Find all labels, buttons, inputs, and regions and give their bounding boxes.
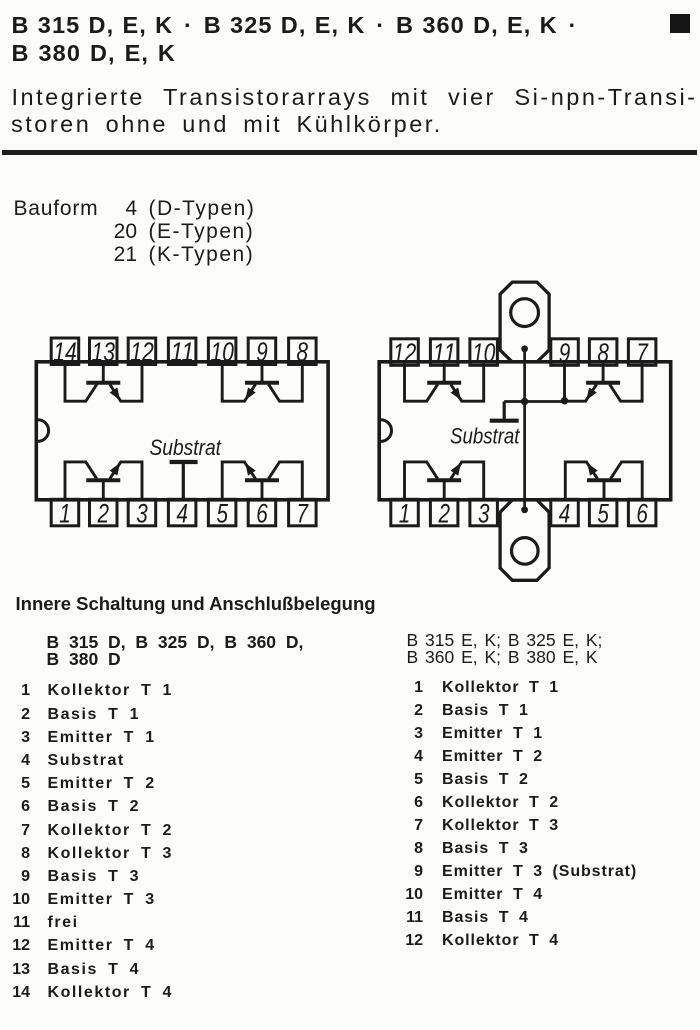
svg-text:Substrat: Substrat (150, 435, 223, 460)
svg-text:12: 12 (130, 337, 154, 367)
svg-text:Substrat: Substrat (450, 424, 520, 449)
svg-text:4: 4 (559, 499, 571, 529)
svg-text:8: 8 (297, 337, 309, 367)
svg-text:5: 5 (216, 499, 228, 529)
svg-text:4: 4 (176, 499, 188, 529)
svg-text:10: 10 (210, 337, 234, 367)
svg-text:7: 7 (297, 499, 309, 529)
svg-text:1: 1 (59, 499, 71, 529)
svg-text:9: 9 (256, 337, 268, 367)
svg-text:5: 5 (597, 499, 609, 529)
svg-text:2: 2 (438, 499, 450, 529)
svg-text:14: 14 (53, 337, 77, 367)
svg-text:6: 6 (256, 499, 268, 529)
svg-text:2: 2 (97, 499, 109, 529)
svg-text:3: 3 (478, 499, 490, 529)
svg-text:11: 11 (170, 337, 194, 367)
svg-text:6: 6 (636, 499, 648, 529)
svg-text:1: 1 (399, 499, 411, 529)
svg-text:13: 13 (92, 337, 116, 367)
svg-text:3: 3 (136, 499, 148, 529)
